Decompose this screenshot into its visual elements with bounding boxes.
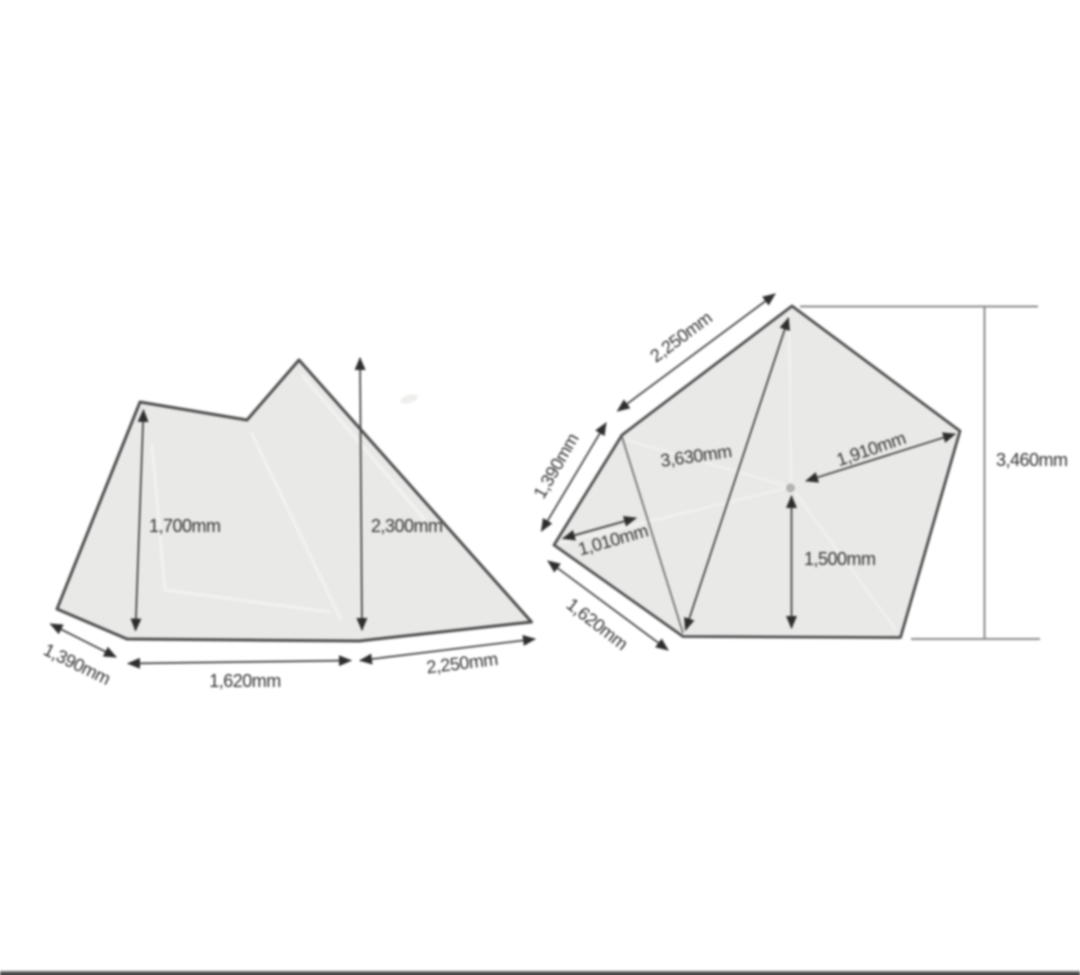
svg-text:2,300mm: 2,300mm [371, 516, 443, 536]
svg-text:1,620mm: 1,620mm [209, 671, 281, 691]
svg-text:1,700mm: 1,700mm [149, 516, 221, 536]
svg-text:1,500mm: 1,500mm [804, 549, 876, 569]
svg-text:1,620mm: 1,620mm [563, 594, 632, 654]
svg-text:2,250mm: 2,250mm [646, 308, 715, 367]
svg-text:1,390mm: 1,390mm [40, 640, 113, 689]
svg-text:2,250mm: 2,250mm [425, 649, 498, 678]
svg-text:3,460mm: 3,460mm [996, 450, 1068, 470]
svg-text:1,390mm: 1,390mm [529, 430, 582, 502]
